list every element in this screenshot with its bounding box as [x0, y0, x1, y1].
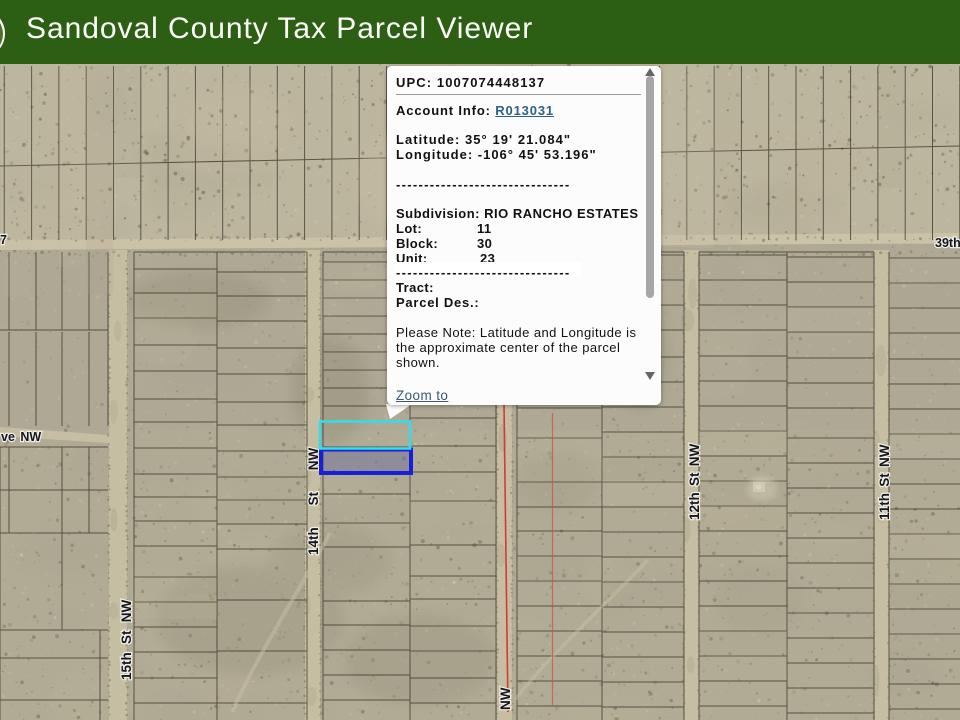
svg-text:11th St NW: 11th St NW — [877, 444, 892, 520]
svg-text:ve NW: ve NW — [1, 430, 41, 444]
svg-text:7: 7 — [0, 233, 7, 247]
svg-text:39th: 39th — [935, 236, 960, 250]
svg-text:NW: NW — [498, 687, 513, 710]
svg-text:15th St NW: 15th St NW — [119, 599, 134, 680]
svg-text:14th St NW: 14th St NW — [306, 447, 321, 555]
svg-text:12th St NW: 12th St NW — [687, 443, 702, 520]
